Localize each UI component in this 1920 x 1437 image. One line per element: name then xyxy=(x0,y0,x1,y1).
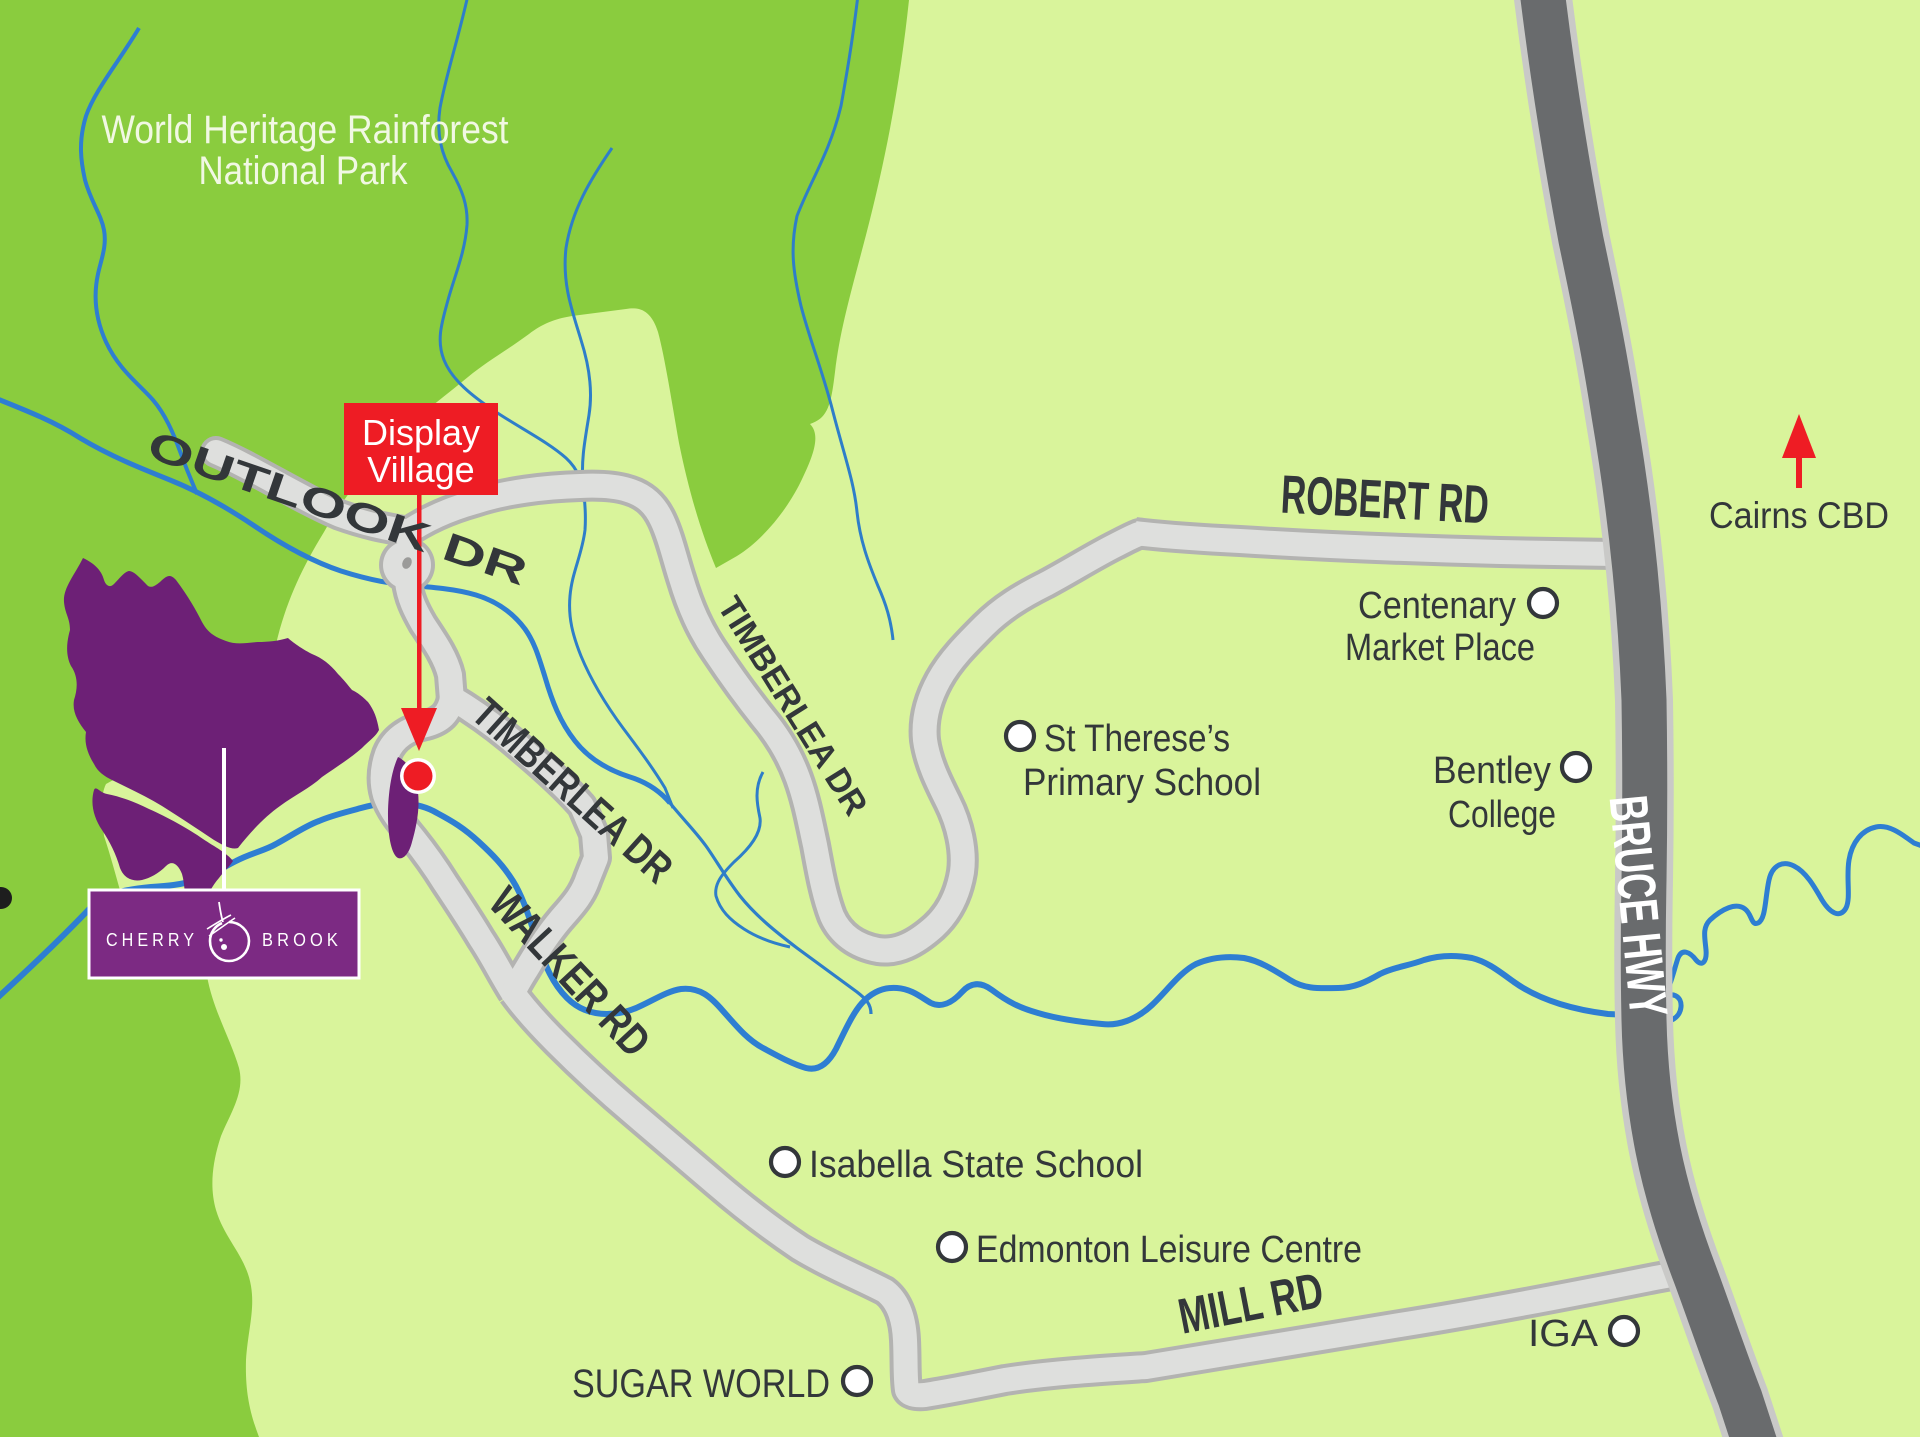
svg-text:IGA: IGA xyxy=(1528,1313,1599,1355)
svg-text:SUGAR WORLD: SUGAR WORLD xyxy=(572,1362,830,1406)
svg-text:National Park: National Park xyxy=(199,149,409,193)
svg-text:Edmonton Leisure Centre: Edmonton Leisure Centre xyxy=(976,1229,1362,1271)
svg-text:Village: Village xyxy=(367,449,474,490)
svg-text:Bentley: Bentley xyxy=(1433,750,1551,792)
svg-text:St Therese’s: St Therese’s xyxy=(1044,718,1230,760)
svg-text:Display: Display xyxy=(362,412,480,453)
svg-text:Cairns CBD: Cairns CBD xyxy=(1709,495,1889,536)
svg-text:World Heritage Rainforest: World Heritage Rainforest xyxy=(102,108,509,152)
svg-text:ROBERT RD: ROBERT RD xyxy=(1280,465,1491,536)
svg-text:Primary School: Primary School xyxy=(1023,762,1261,804)
svg-text:College: College xyxy=(1448,794,1556,836)
svg-text:CHERRY: CHERRY xyxy=(106,930,198,950)
svg-text:BROOK: BROOK xyxy=(262,930,342,950)
svg-text:Centenary: Centenary xyxy=(1358,585,1516,627)
svg-text:Market Place: Market Place xyxy=(1345,627,1535,669)
svg-text:Isabella State School: Isabella State School xyxy=(809,1144,1143,1186)
